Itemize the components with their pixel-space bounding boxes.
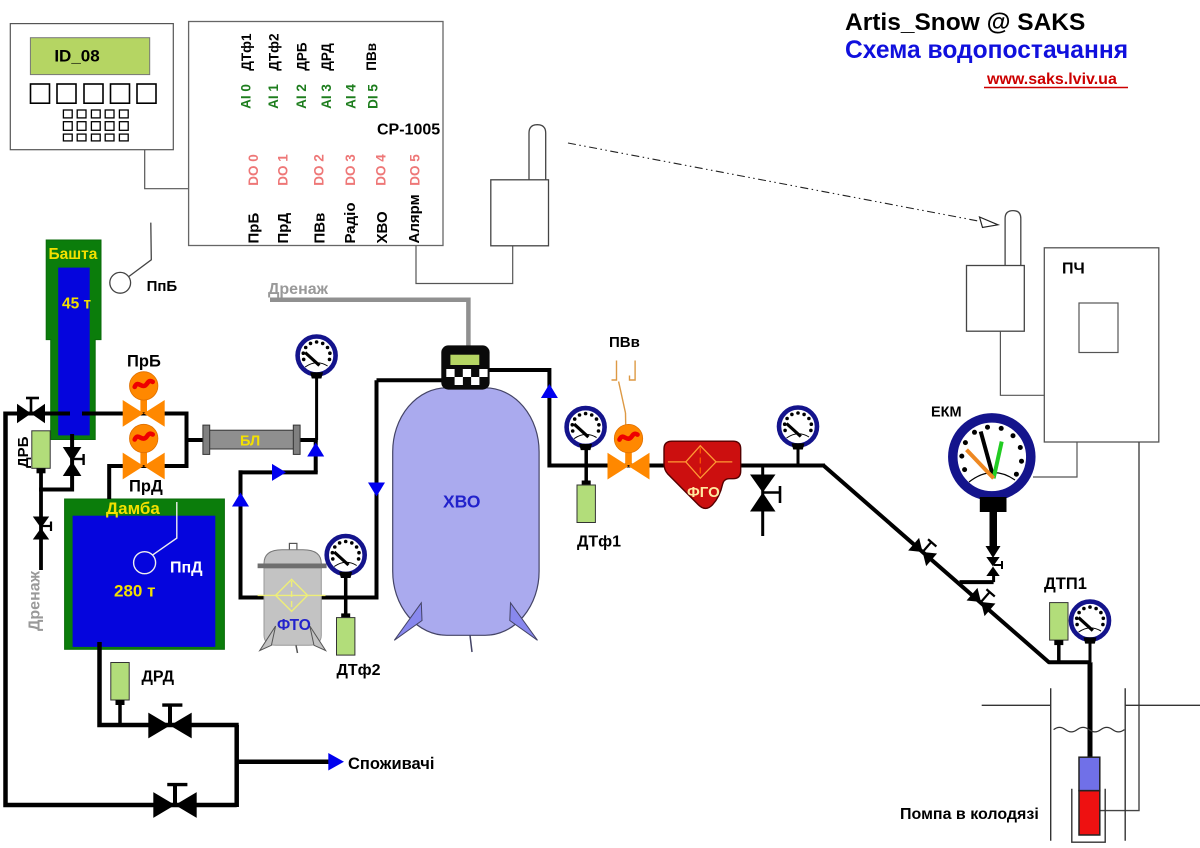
svg-text:ПЧ: ПЧ — [1062, 261, 1085, 278]
svg-text:DO 2: DO 2 — [312, 154, 327, 186]
svg-text:Схема водопостачання: Схема водопостачання — [845, 37, 1128, 64]
svg-text:CP-1005: CP-1005 — [377, 122, 440, 139]
svg-text:AI 2: AI 2 — [294, 84, 309, 109]
svg-text:ФГО: ФГО — [687, 484, 720, 501]
svg-text:Дренаж: Дренаж — [268, 281, 329, 298]
svg-text:AI 0: AI 0 — [239, 84, 254, 109]
svg-text:AI 4: AI 4 — [344, 84, 359, 109]
svg-text:ПрБ: ПрБ — [127, 353, 161, 371]
svg-text:ДТП1: ДТП1 — [1044, 575, 1087, 593]
svg-text:ДРД: ДРД — [319, 43, 334, 71]
svg-text:ДТф2: ДТф2 — [267, 34, 282, 71]
svg-text:ДРБ: ДРБ — [15, 436, 32, 468]
svg-text:ID_08: ID_08 — [54, 47, 99, 66]
svg-text:Алярм: Алярм — [406, 194, 423, 243]
svg-text:Помпа в колодязі: Помпа в колодязі — [900, 806, 1039, 823]
svg-text:ПпД: ПпД — [170, 560, 203, 577]
svg-text:ПВв: ПВв — [609, 334, 640, 351]
svg-text:Дренаж: Дренаж — [27, 570, 44, 631]
svg-text:DO 1: DO 1 — [276, 154, 291, 186]
svg-text:ФТО: ФТО — [277, 617, 311, 634]
svg-text:ПВв: ПВв — [364, 43, 379, 71]
svg-text:Artis_Snow @ SAKS: Artis_Snow @ SAKS — [845, 9, 1085, 36]
svg-text:ДТф2: ДТф2 — [337, 662, 381, 679]
svg-text:БЛ: БЛ — [240, 434, 260, 450]
svg-text:DI 5: DI 5 — [366, 84, 381, 109]
svg-text:ПВв: ПВв — [312, 213, 329, 244]
svg-text:ЕКМ: ЕКМ — [931, 405, 962, 421]
svg-text:ДТф1: ДТф1 — [577, 534, 621, 551]
svg-text:ХВО: ХВО — [443, 492, 481, 512]
svg-text:ДРД: ДРД — [142, 669, 175, 686]
svg-text:ХВО: ХВО — [374, 211, 391, 243]
svg-text:ДТф1: ДТф1 — [239, 33, 254, 71]
svg-text:ПрД: ПрД — [129, 478, 163, 496]
svg-text:AI 3: AI 3 — [319, 84, 334, 109]
svg-text:ПрД: ПрД — [275, 213, 292, 244]
svg-text:Башта: Башта — [49, 246, 98, 263]
svg-text:Радіо: Радіо — [342, 202, 359, 243]
svg-text:DO 4: DO 4 — [374, 154, 389, 186]
svg-text:ДРБ: ДРБ — [295, 42, 310, 71]
svg-text:ПпБ: ПпБ — [147, 278, 178, 295]
svg-text:280 т: 280 т — [114, 582, 155, 601]
svg-text:DO 0: DO 0 — [246, 154, 261, 186]
svg-text:Дамба: Дамба — [106, 499, 160, 518]
svg-text:AI 1: AI 1 — [266, 84, 281, 109]
svg-text:DO 5: DO 5 — [408, 154, 423, 186]
svg-text:45 т: 45 т — [62, 296, 92, 313]
svg-text:DO 3: DO 3 — [343, 154, 358, 186]
svg-text:ПрБ: ПрБ — [246, 213, 263, 244]
svg-text:Споживачі: Споживачі — [348, 755, 434, 773]
svg-text:www.saks.lviv.ua: www.saks.lviv.ua — [986, 71, 1117, 88]
